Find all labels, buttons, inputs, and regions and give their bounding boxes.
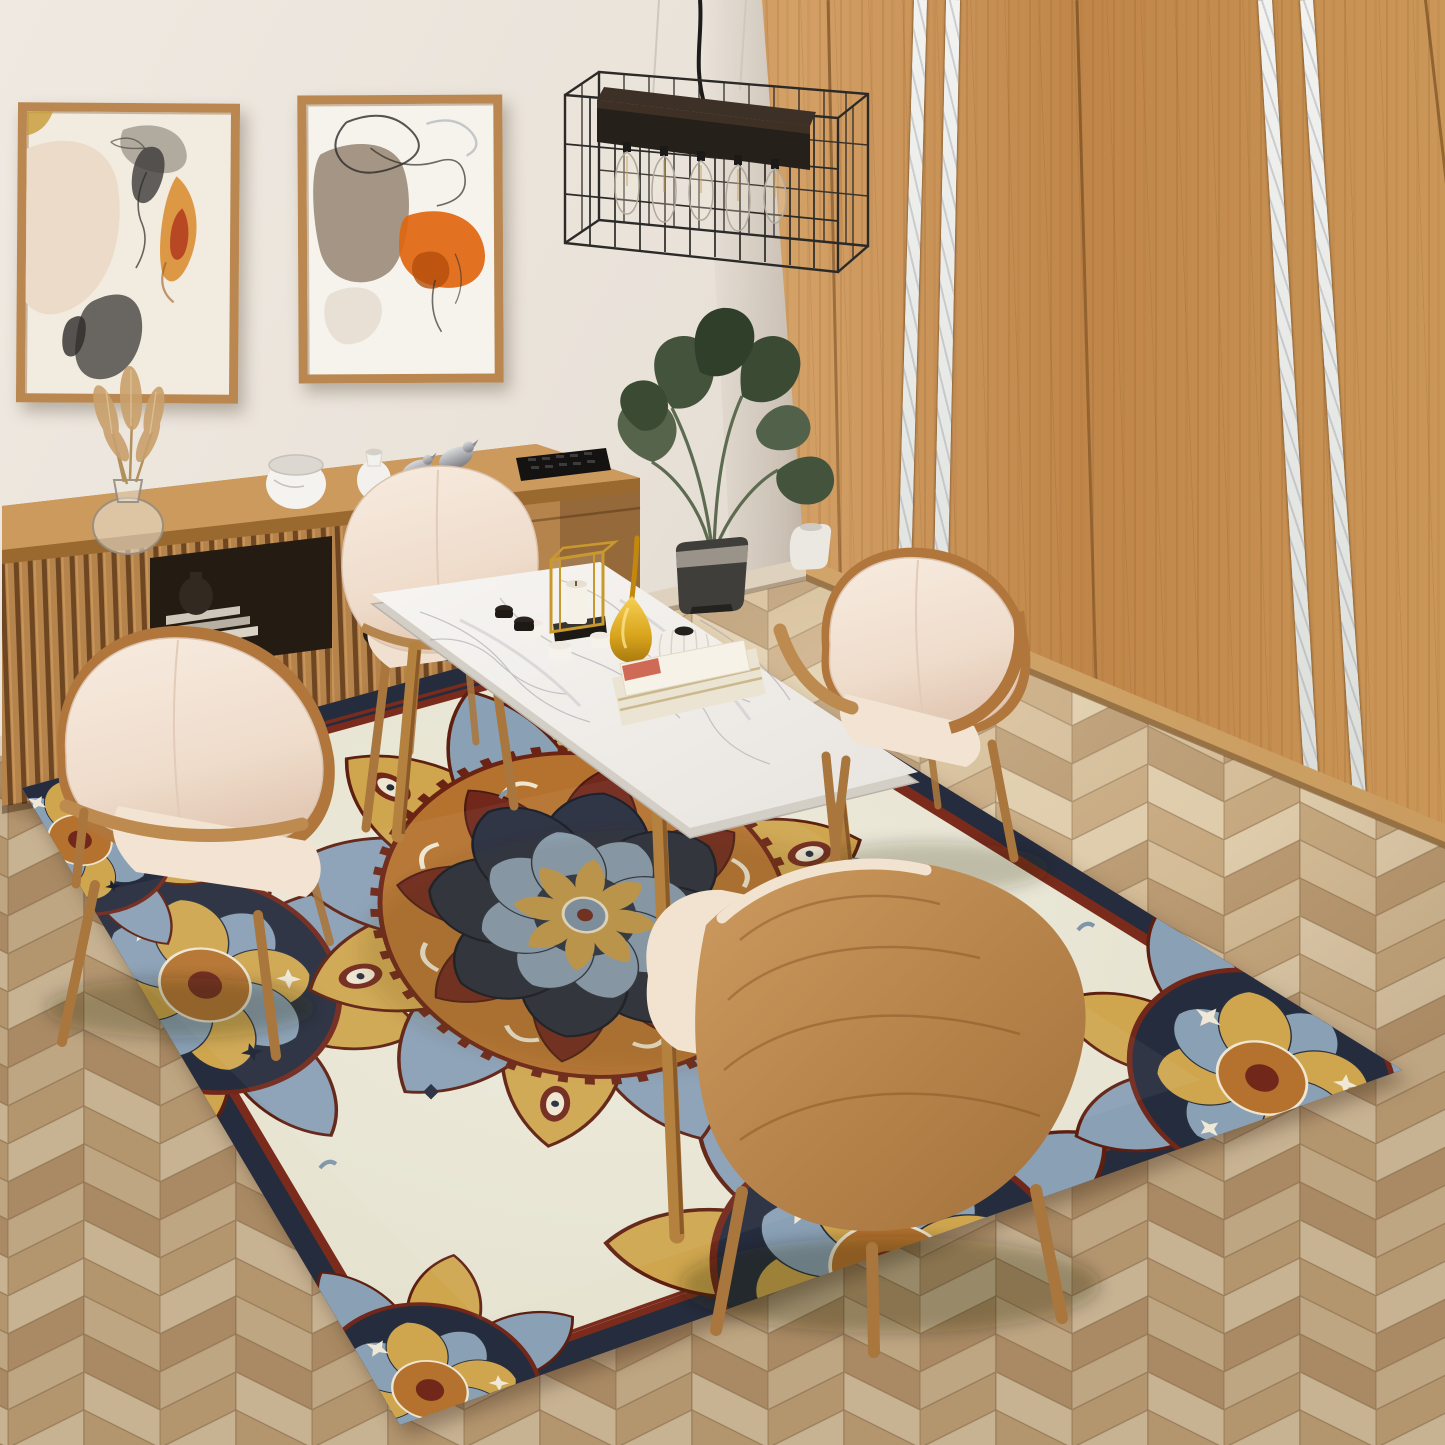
- chair-shadow: [680, 1237, 1100, 1333]
- backrest-wood-shell: [695, 860, 1085, 1231]
- interior-scene: Dining room interior render with mandala…: [0, 0, 1445, 1445]
- furniture-group: [0, 0, 1445, 1445]
- pillar-candle: [566, 584, 587, 624]
- vase-mouth: [675, 627, 694, 636]
- dining-chair-front: [646, 860, 1100, 1352]
- arm-post: [76, 812, 84, 884]
- dining-chair-left: [45, 626, 335, 1056]
